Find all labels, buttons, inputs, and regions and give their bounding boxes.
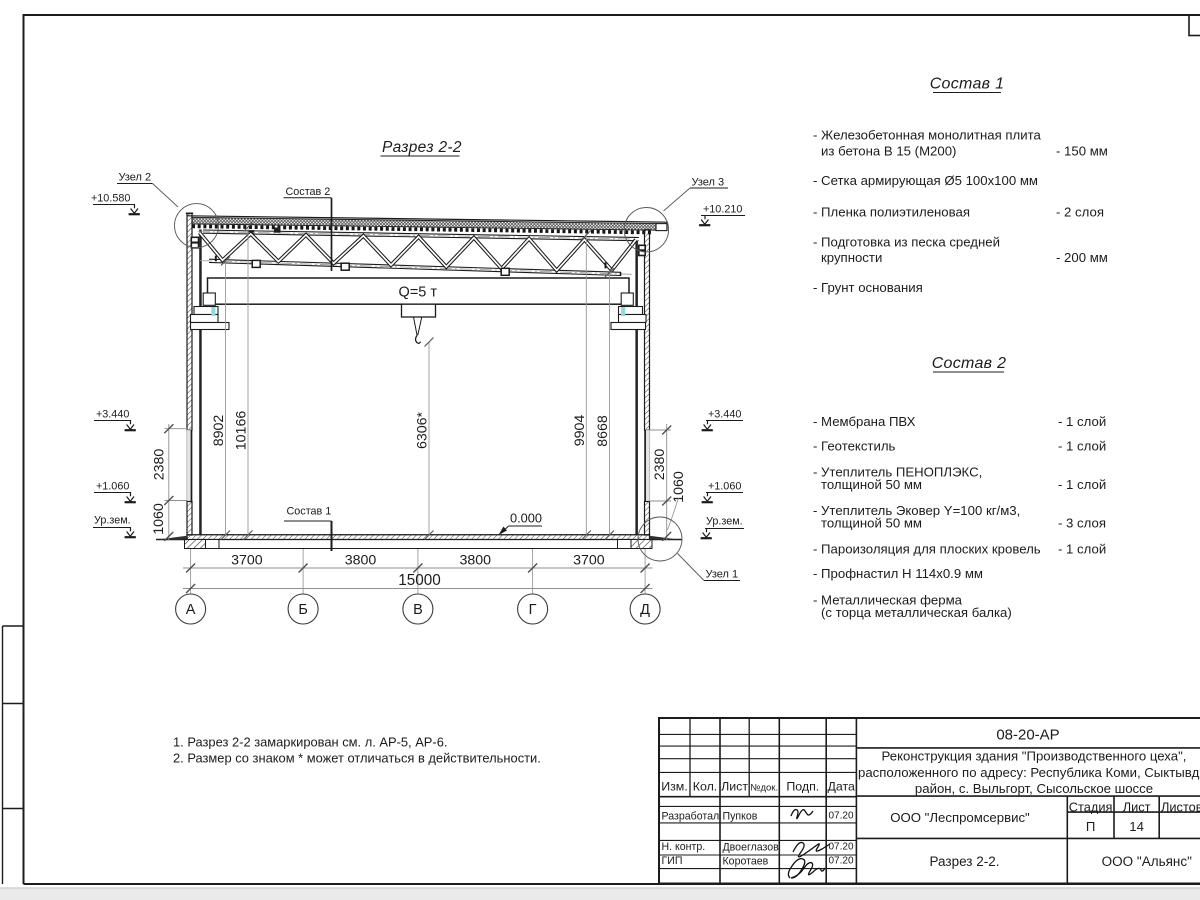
svg-text:- 3 слоя: - 3 слоя: [1058, 516, 1106, 531]
svg-text:- 1 слой: - 1 слой: [1058, 414, 1106, 429]
svg-text:+10.210: +10.210: [703, 204, 742, 216]
svg-text:Лист: Лист: [1123, 800, 1151, 815]
svg-text:толщиной 50 мм: толщиной 50 мм: [821, 477, 922, 492]
svg-text:Дата: Дата: [827, 780, 855, 794]
svg-text:ООО "Леспромсервис": ООО "Леспромсервис": [890, 810, 1030, 825]
svg-text:Листов: Листов: [1161, 800, 1200, 815]
svg-text:П: П: [1086, 819, 1095, 834]
svg-text:расположенного по адресу: Респ: расположенного по адресу: Республика Ком…: [858, 765, 1200, 780]
svg-text:+10.580: +10.580: [91, 193, 130, 205]
svg-text:Состав 2: Состав 2: [932, 355, 1007, 372]
svg-text:+1.060: +1.060: [96, 481, 129, 493]
svg-text:Узел 3: Узел 3: [692, 177, 725, 189]
svg-text:- 2 слоя: - 2 слоя: [1056, 205, 1104, 220]
svg-text:- 1 слой: - 1 слой: [1058, 439, 1106, 454]
svg-text:07.20: 07.20: [828, 841, 853, 852]
svg-text:А: А: [186, 602, 196, 618]
svg-text:Узел 2: Узел 2: [119, 172, 152, 184]
svg-text:1. Разрез 2-2 замаркирован см.: 1. Разрез 2-2 замаркирован см. л. АР-5, …: [173, 735, 447, 750]
svg-text:- Мембрана ПВХ: - Мембрана ПВХ: [813, 414, 916, 429]
svg-text:8668: 8668: [595, 415, 611, 447]
svg-text:- 200 мм: - 200 мм: [1056, 250, 1108, 265]
svg-text:Н. контр.: Н. контр.: [662, 841, 706, 853]
svg-text:В: В: [413, 602, 423, 618]
svg-text:- Пароизоляция для плоских кро: - Пароизоляция для плоских кровель: [813, 542, 1041, 557]
svg-text:2380: 2380: [652, 449, 668, 481]
svg-text:Изм.: Изм.: [661, 780, 688, 794]
svg-text:9904: 9904: [572, 415, 588, 447]
svg-text:0.000: 0.000: [510, 511, 542, 526]
svg-text:Состав 2: Состав 2: [286, 186, 331, 198]
svg-text:Ур.зем.: Ур.зем.: [94, 515, 131, 527]
svg-text:10166: 10166: [234, 411, 250, 451]
svg-text:Д: Д: [640, 602, 650, 618]
svg-text:- 150 мм: - 150 мм: [1056, 144, 1108, 159]
svg-text:07.20: 07.20: [828, 855, 853, 866]
svg-text:3700: 3700: [231, 553, 263, 569]
svg-text:Г: Г: [529, 602, 537, 618]
svg-text:Коротаев: Коротаев: [723, 855, 769, 867]
svg-text:Состав 1: Состав 1: [287, 506, 332, 518]
svg-text:08-20-АР: 08-20-АР: [996, 727, 1059, 744]
svg-text:Разрез 2-2: Разрез 2-2: [382, 139, 462, 156]
svg-text:6306*: 6306*: [415, 411, 431, 449]
svg-text:Двоеглазов: Двоеглазов: [723, 841, 780, 853]
svg-text:07.20: 07.20: [828, 811, 853, 822]
svg-text:- Грунт основания: - Грунт основания: [813, 280, 923, 295]
svg-text:2. Размер со знаком * может от: 2. Размер со знаком * может отличаться в…: [173, 750, 541, 765]
svg-text:+3.440: +3.440: [708, 409, 741, 421]
svg-text:ГИП: ГИП: [662, 855, 683, 867]
svg-text:Стадия: Стадия: [1069, 800, 1113, 815]
svg-text:Состав 1: Состав 1: [930, 76, 1005, 93]
svg-text:+1.060: +1.060: [708, 481, 741, 493]
svg-text:район, с. Выльгорт, Сысольское: район, с. Выльгорт, Сысольское шоссе: [915, 781, 1153, 796]
svg-text:3700: 3700: [573, 553, 605, 569]
svg-text:Б: Б: [298, 602, 308, 618]
svg-text:Реконструкция здания "Производ: Реконструкция здания "Производственного …: [882, 749, 1187, 764]
svg-text:8902: 8902: [211, 415, 227, 447]
svg-text:Q=5 т: Q=5 т: [399, 285, 438, 301]
svg-text:Пупков: Пупков: [723, 811, 758, 823]
svg-text:Разработал: Разработал: [662, 811, 720, 823]
svg-text:толщиной 50 мм: толщиной 50 мм: [821, 516, 922, 531]
svg-text:+3.440: +3.440: [96, 409, 129, 421]
svg-text:14: 14: [1129, 819, 1144, 834]
svg-text:из бетона В 15 (М200): из бетона В 15 (М200): [821, 144, 956, 159]
svg-text:- Сетка армирующая Ø5 100х100: - Сетка армирующая Ø5 100х100 мм: [813, 173, 1038, 188]
svg-text:- 1 слой: - 1 слой: [1058, 477, 1106, 492]
svg-text:- Геотекстиль: - Геотекстиль: [813, 439, 896, 454]
svg-text:крупности: крупности: [821, 250, 882, 265]
svg-text:1060: 1060: [151, 503, 167, 535]
svg-text:Разрез 2-2.: Разрез 2-2.: [929, 854, 999, 869]
svg-text:3800: 3800: [460, 553, 492, 569]
svg-text:2380: 2380: [151, 449, 167, 481]
svg-text:3800: 3800: [345, 553, 377, 569]
svg-text:Лист: Лист: [721, 780, 748, 794]
svg-text:- Пленка полиэтиленовая: - Пленка полиэтиленовая: [813, 205, 970, 220]
svg-text:15000: 15000: [398, 572, 441, 589]
svg-text:ООО "Альянс": ООО "Альянс": [1102, 854, 1192, 869]
svg-text:Ур.зем.: Ур.зем.: [706, 516, 743, 528]
svg-text:№док.: №док.: [750, 783, 778, 794]
svg-text:Подп.: Подп.: [786, 780, 819, 794]
svg-text:Узел 1: Узел 1: [706, 569, 739, 581]
svg-text:- Железобетонная монолитная п: - Железобетонная монолитная плита: [813, 128, 1042, 143]
svg-text:- 1 слой: - 1 слой: [1058, 542, 1106, 557]
svg-text:- Подготовка из песка средней: - Подготовка из песка средней: [813, 235, 1000, 250]
svg-text:Кол.: Кол.: [693, 780, 718, 794]
svg-text:- Профнастил Н 114х0.9 мм: - Профнастил Н 114х0.9 мм: [813, 566, 983, 581]
svg-text:(с торца металлическая балка): (с торца металлическая балка): [821, 605, 1012, 620]
svg-text:1060: 1060: [671, 471, 687, 503]
